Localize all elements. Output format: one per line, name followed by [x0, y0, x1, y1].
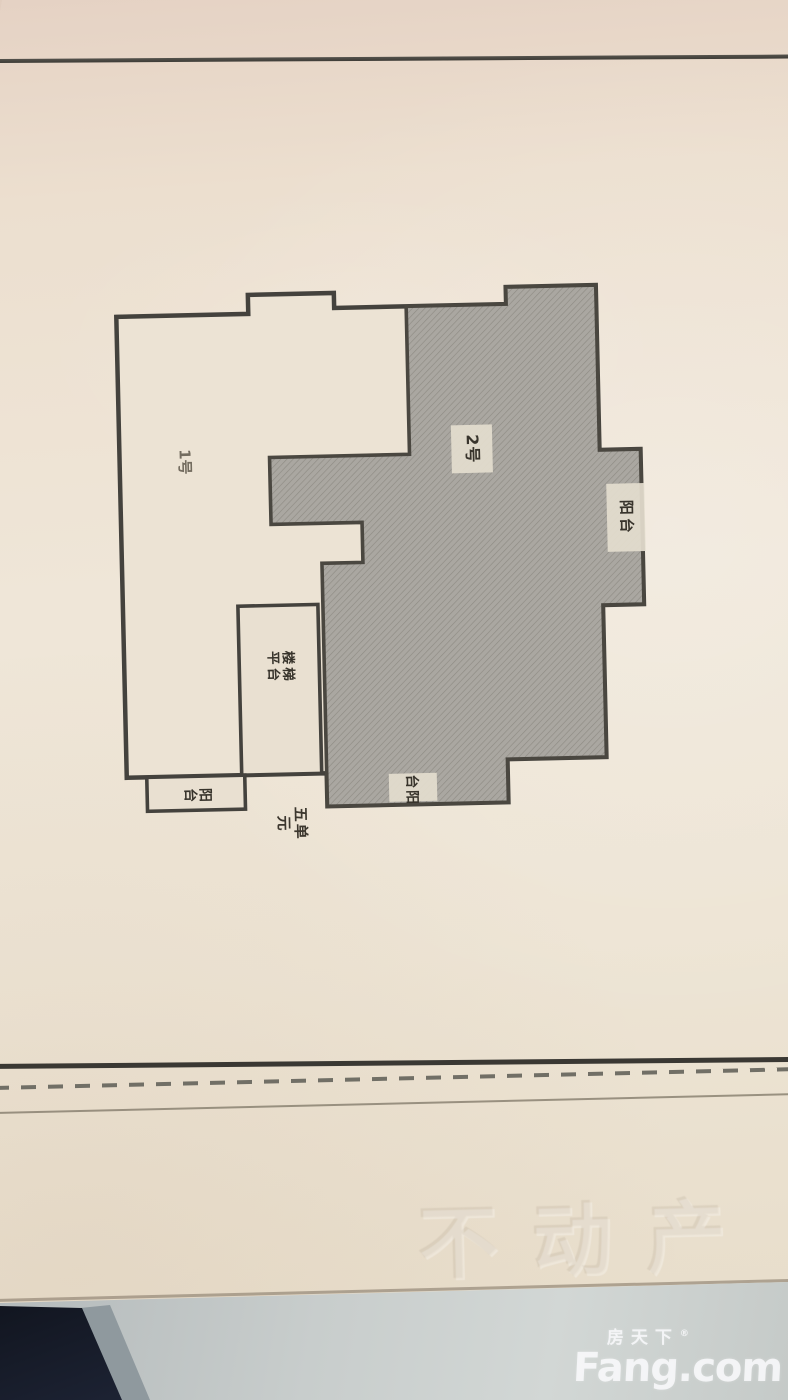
boundary-dashed-line [0, 1066, 788, 1090]
boundary-solid-line [0, 1057, 788, 1069]
floor-plan: 1号 2号 阳台 阳台 阳台 楼梯 平台 五单元 [73, 258, 686, 871]
fang-watermark-logo: Fang.com [572, 1348, 783, 1388]
balcony-left-text: 阳台 [183, 785, 213, 801]
fang-watermark: 房天下® Fang.com [573, 1330, 782, 1388]
unit-1-label: 1号 [162, 435, 207, 488]
document-top-rule [0, 54, 788, 63]
balcony-bottom-tag: 阳台 [389, 773, 438, 802]
balcony-left-label: 阳台 [169, 773, 228, 814]
unit-entrance-text: 五单元 [275, 802, 310, 847]
unit-2-text: 2号 [463, 434, 482, 464]
unit-1-text: 1号 [176, 448, 193, 474]
balcony-right-tag: 阳台 [606, 483, 646, 552]
document-photo: 1号 2号 阳台 阳台 阳台 楼梯 平台 五单元 不动产 [0, 0, 788, 1400]
floor-plan-drawing [73, 258, 686, 871]
boundary-thin-line [0, 1092, 788, 1114]
unit-entrance-label: 五单元 [269, 793, 314, 856]
stairwell-line2: 平台 [264, 651, 280, 684]
balcony-right-text: 阳台 [617, 499, 635, 535]
stairwell-label-lines: 楼梯 平台 [264, 650, 295, 684]
stairwell-line1: 楼梯 [279, 650, 295, 683]
registered-trademark-icon: ® [680, 1329, 696, 1339]
stairwell-label: 楼梯 平台 [247, 635, 312, 700]
balcony-bottom-text: 阳台 [399, 771, 428, 803]
paper-emboss-text: 不动产 [417, 1172, 762, 1296]
unit-2-label-tag: 2号 [451, 424, 493, 473]
